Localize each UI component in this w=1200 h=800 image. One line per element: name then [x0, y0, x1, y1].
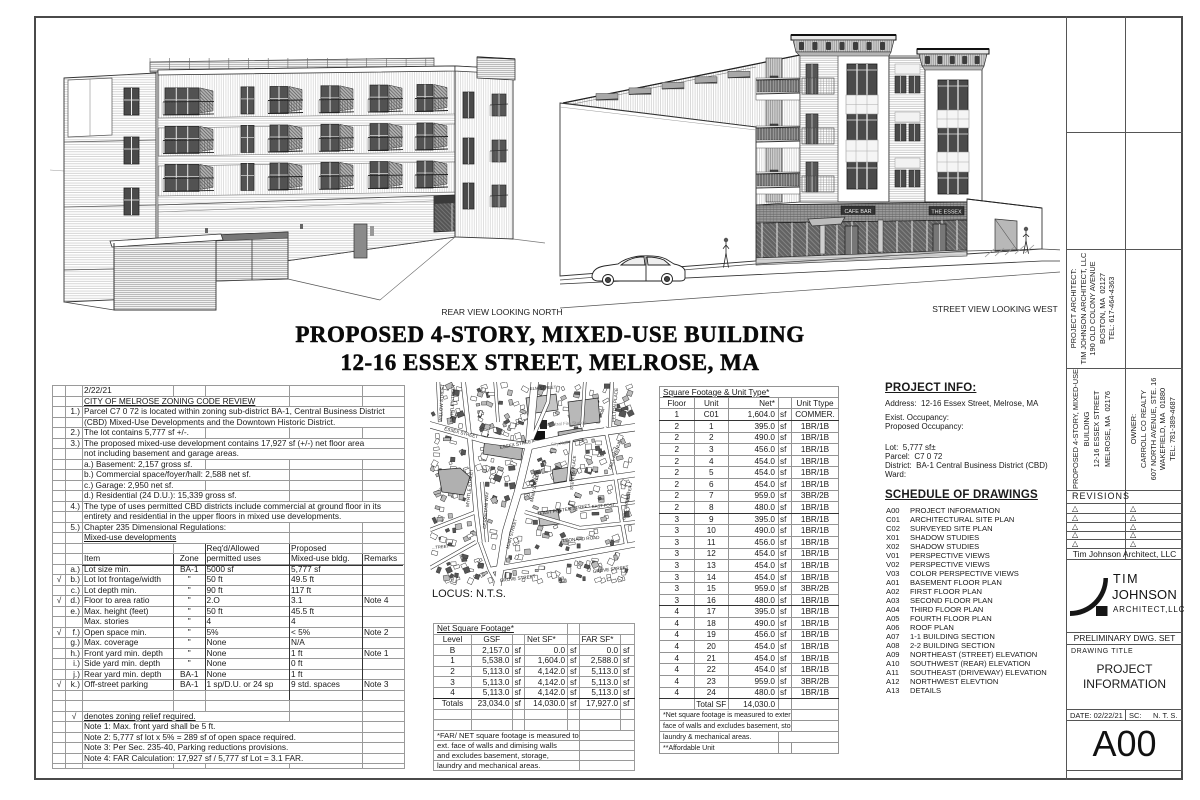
- svg-text:THE ESSEX: THE ESSEX: [931, 209, 962, 215]
- svg-text:CAFE BAR: CAFE BAR: [845, 209, 872, 215]
